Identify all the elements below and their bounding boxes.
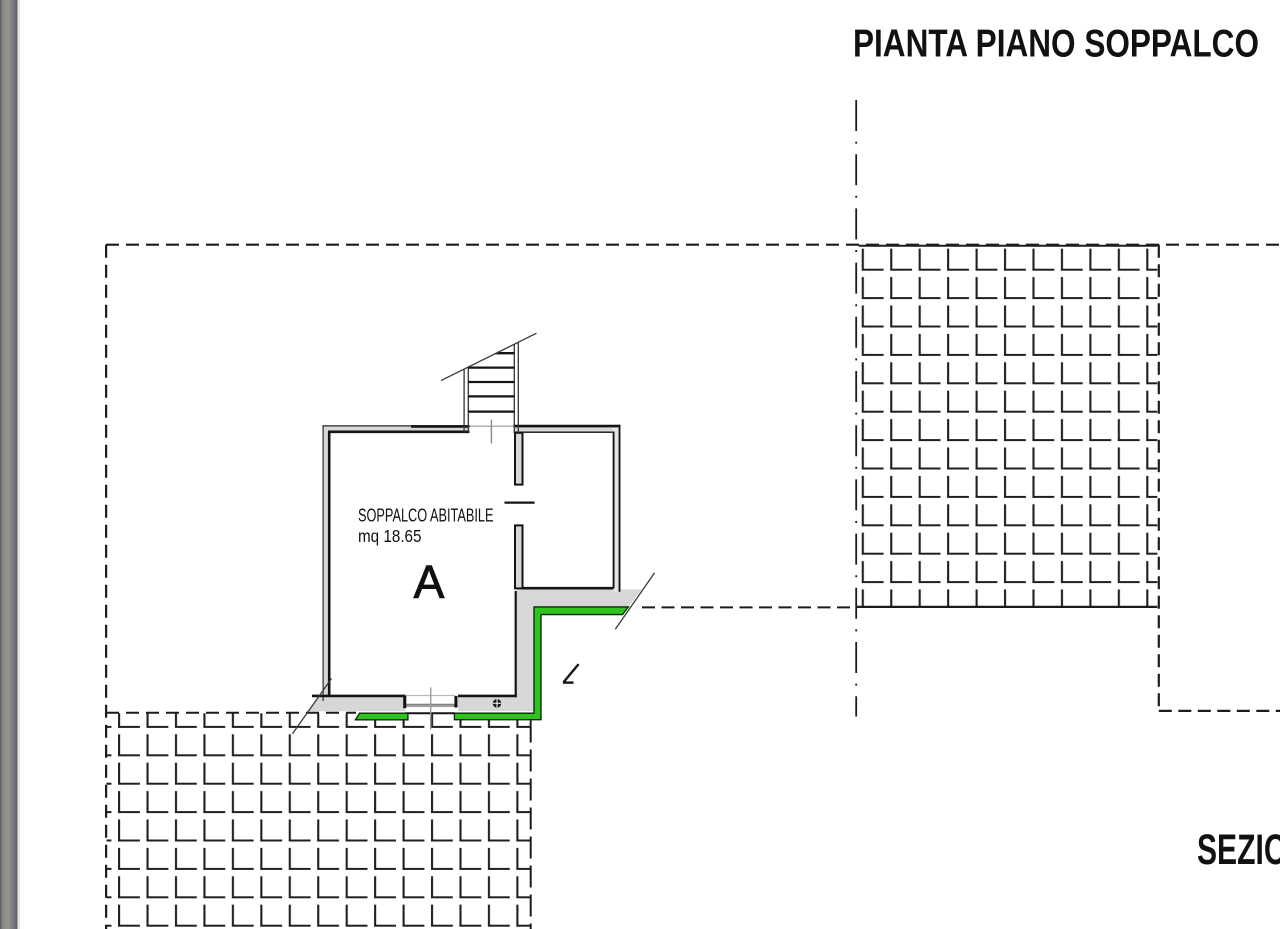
svg-text:SOPPALCO ABITABILE: SOPPALCO ABITABILE <box>358 505 494 525</box>
svg-text:PIANTA PIANO SOPPALCO: PIANTA PIANO SOPPALCO <box>853 23 1259 66</box>
svg-text:A: A <box>414 556 445 608</box>
svg-text:SEZIONE: SEZIONE <box>1197 826 1280 874</box>
svg-text:mq 18.65: mq 18.65 <box>358 526 422 546</box>
